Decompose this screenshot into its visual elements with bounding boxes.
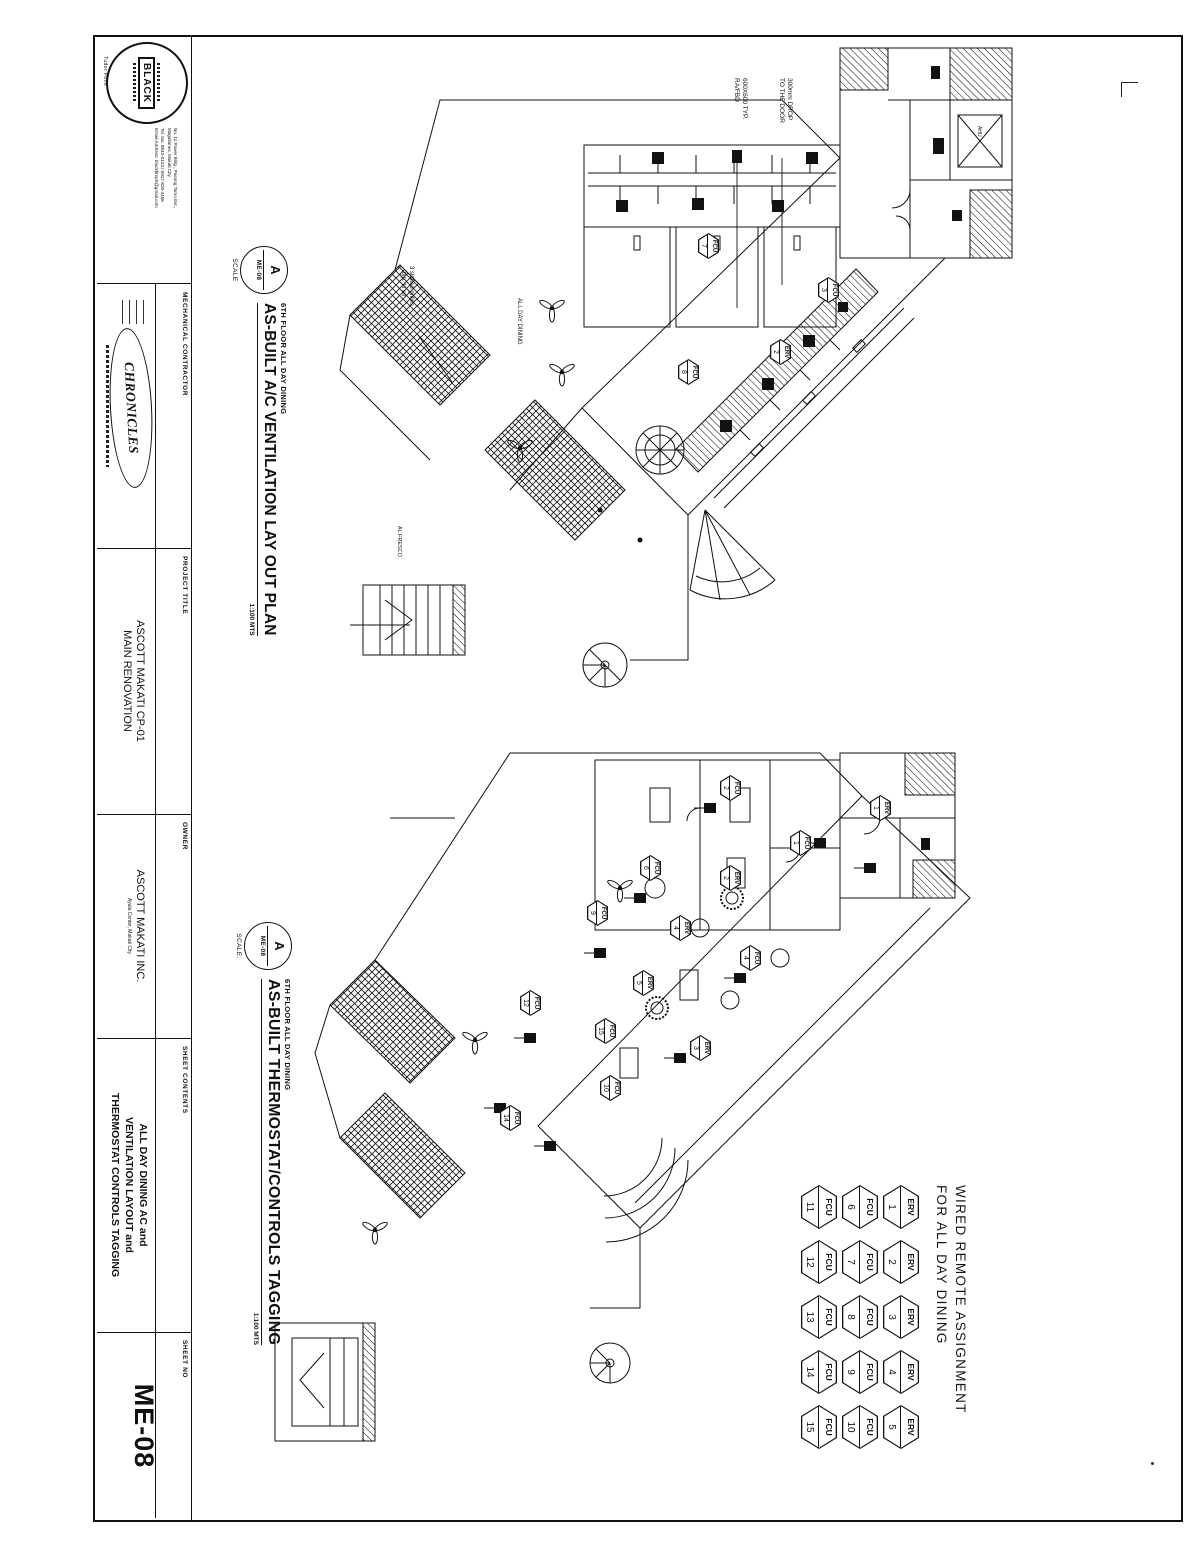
bubble-sheet-ref: ME-08 [255, 247, 262, 293]
erv-3-tag: ERV3 [883, 1295, 919, 1339]
fcu-9-tag: FCU9 [587, 900, 608, 926]
remote-heading-line1: WIRED REMOTE ASSIGNMENT [951, 1185, 970, 1449]
tag-hex-shape [859, 1186, 860, 1228]
bubble-sheet-ref: ME-08 [259, 923, 266, 969]
tag-type: FCU [709, 233, 719, 259]
contractor-section-label: MECHANICAL CONTRACTOR [181, 292, 188, 396]
tag-number: 12 [520, 990, 530, 1016]
plan2-title: AS-BUILT THERMOSTAT/CONTROLS TAGGING [261, 979, 282, 1345]
tag-number: 9 [587, 900, 597, 926]
plan2-scale-value: 1:100 MTS [252, 979, 259, 1345]
address-line: Email Address: blackfireph@gmail.com [152, 128, 158, 278]
project-title-label: PROJECT TITLE [181, 556, 188, 614]
fcu-4-tag: FCU4 [740, 945, 761, 971]
tag-number: 1 [870, 795, 880, 821]
tag-type: FCU [820, 1185, 837, 1229]
erv-2-tag: ERV2 [883, 1240, 919, 1284]
tag-type: FCU [606, 1018, 616, 1044]
tag-number: 6 [842, 1185, 859, 1229]
fcu-12-tag: FCU12 [801, 1240, 837, 1284]
tag-number: 13 [801, 1295, 818, 1339]
tag-number: 2 [883, 1240, 900, 1284]
scanned-drawing-page: 300mm DROP TO THE DOOR 600X600 TYP. RA/F… [0, 0, 1200, 1553]
tag-number: 5 [633, 970, 643, 996]
tag-type: ERV [731, 865, 741, 891]
tag-hex-shape [900, 1296, 901, 1338]
fcu-13-tag: FCU13 [801, 1295, 837, 1339]
tag-type: ERV [902, 1295, 919, 1339]
fcu-9-tag: FCU9 [842, 1350, 878, 1394]
fcu-12-tag: FCU12 [520, 990, 541, 1016]
plan1-title: AS-BUILT A/C VENTILATION LAY OUT PLAN [257, 303, 278, 636]
tag-number: 1 [883, 1185, 900, 1229]
tag-number: 8 [842, 1295, 859, 1339]
tag-number: 12 [801, 1240, 818, 1284]
tag-type: FCU [611, 1075, 621, 1101]
plan2-context: 6TH FLOOR ALL DAY DINING [283, 979, 292, 1345]
contractor-logo: BLACK [106, 42, 188, 124]
tag-type: FCU [829, 277, 839, 303]
tag-type: FCU [820, 1240, 837, 1284]
tag-type: FCU [731, 775, 741, 801]
wired-remote-assignment: WIRED REMOTE ASSIGNMENT FOR ALL DAY DINI… [796, 1185, 970, 1449]
tag-type: FCU [861, 1185, 878, 1229]
stamp-text: CHRONICLES [121, 362, 142, 455]
tag-number: 4 [740, 945, 750, 971]
drawing-sheet: 300mm DROP TO THE DOOR 600X600 TYP. RA/F… [0, 0, 1200, 1553]
erv-1-tag: ERV1 [883, 1185, 919, 1229]
tag-type: ERV [902, 1350, 919, 1394]
tag-hex-shape [900, 1186, 901, 1228]
stamp-subtext [106, 345, 109, 467]
fcu-1-tag: FCU1 [790, 830, 811, 856]
owner-name: ASCOTT MAKATI INC. [133, 814, 146, 1038]
fcu-6-tag: FCU6 [640, 855, 661, 881]
address-line: No. 11 Power Bldg., Pasong Tamo Ext., [172, 128, 178, 278]
erv-4-tag: ERV4 [883, 1350, 919, 1394]
fcu-10-tag: FCU10 [600, 1075, 621, 1101]
tag-type: FCU [861, 1240, 878, 1284]
tag-hex-shape [818, 1296, 819, 1338]
sheet-no-label: SHEET NO [181, 1340, 188, 1378]
stamp-notes [118, 300, 144, 324]
tag-hex-shape [859, 1296, 860, 1338]
tag-hex-shape [859, 1241, 860, 1283]
plan1-context: 6TH FLOOR ALL DAY DINING [279, 303, 288, 636]
tag-type: FCU [820, 1405, 837, 1449]
tag-number: 4 [883, 1350, 900, 1394]
tag-type: ERV [781, 339, 791, 365]
tag-type: ERV [902, 1185, 919, 1229]
remote-heading-line2: FOR ALL DAY DINING [932, 1185, 951, 1449]
remote-tag-grid: ERV1ERV2ERV3ERV4ERV5FCU6FCU7FCU8FCU9FCU1… [801, 1185, 919, 1449]
fcu-7-tag: FCU7 [842, 1240, 878, 1284]
tag-type: FCU [598, 900, 608, 926]
owner-value: ASCOTT MAKATI INC. Ayala Center, Makati … [125, 814, 146, 1038]
fcu-14-tag: FCU14 [500, 1105, 521, 1131]
fcu-15-tag: FCU15 [801, 1405, 837, 1449]
contents-line: THERMOSTAT CONTROLS TAGGING [108, 1038, 122, 1332]
tag-number: 14 [801, 1350, 818, 1394]
remote-row-fcu: FCU6FCU7FCU8FCU9FCU10 [842, 1185, 878, 1449]
tag-type: ERV [681, 915, 691, 941]
tag-type: FCU [651, 855, 661, 881]
tag-hex-shape [818, 1186, 819, 1228]
tag-number: 10 [600, 1075, 610, 1101]
tag-type: FCU [801, 830, 811, 856]
tag-type: ERV [701, 1035, 711, 1061]
fcu-15-tag: FCU15 [595, 1018, 616, 1044]
tag-hex-shape [900, 1351, 901, 1393]
tag-type: FCU [689, 359, 699, 385]
sheet-contents-label: SHEET CONTENTS [181, 1046, 188, 1114]
tag-number: 2 [720, 865, 730, 891]
fcu-8-tag: FCU8 [842, 1295, 878, 1339]
tag-number: 5 [883, 1405, 900, 1449]
tag-hex-shape [818, 1241, 819, 1283]
fcu-14-tag: FCU14 [801, 1350, 837, 1394]
tag-number: 3 [690, 1035, 700, 1061]
project-title-value: ASCOTT MAKATI CP-01 MAIN RENOVATION [120, 548, 146, 814]
tag-type: FCU [861, 1405, 878, 1449]
tag-type: FCU [861, 1295, 878, 1339]
bubble-letter: A [272, 923, 287, 969]
erv-3-tag: ERV3 [690, 1035, 711, 1061]
fcu-3-tag: FCU3 [818, 277, 839, 303]
contents-line: ALL DAY DINING AC and [136, 1038, 150, 1332]
erv-2-tag: ERV2 [770, 339, 791, 365]
remote-row-erv: ERV1ERV2ERV3ERV4ERV5 [883, 1185, 919, 1449]
tag-number: 3 [883, 1295, 900, 1339]
tag-type: FCU [531, 990, 541, 1016]
fcu-10-tag: FCU10 [842, 1405, 878, 1449]
scale-label: SCALE [231, 258, 238, 281]
tag-number: 2 [770, 339, 780, 365]
tag-number: 15 [801, 1405, 818, 1449]
tag-number: 8 [678, 359, 688, 385]
contents-line: VENTILATION LAYOUT and [122, 1038, 136, 1332]
logo-arc-text [134, 63, 137, 103]
fcu-2-tag: FCU2 [720, 775, 741, 801]
tag-hex-shape [818, 1406, 819, 1448]
equipment-tags-layer: FCU3ERV2FCU7FCU8ERV1FCU1FCU2ERV2FCU4ERV4… [0, 0, 1200, 1553]
bubble-letter: A [268, 247, 283, 293]
erv-5-tag: ERV5 [883, 1405, 919, 1449]
tag-number: 11 [801, 1185, 818, 1229]
tag-type: FCU [820, 1295, 837, 1339]
tag-number: 6 [640, 855, 650, 881]
tag-type: ERV [881, 795, 891, 821]
erv-2-tag: ERV2 [720, 865, 741, 891]
tag-type: ERV [902, 1240, 919, 1284]
address-line: Tel. No. 8844-0123 / 0917-820-4455 [159, 128, 165, 278]
tag-number: 14 [500, 1105, 510, 1131]
sheet-no-value: ME-08 [137, 1332, 150, 1520]
tag-hex-shape [859, 1351, 860, 1393]
tag-number: 9 [842, 1350, 859, 1394]
tag-type: FCU [820, 1350, 837, 1394]
tag-number: 15 [595, 1018, 605, 1044]
tag-type: FCU [511, 1105, 521, 1131]
project-line: ASCOTT MAKATI CP-01 [133, 548, 146, 814]
fcu-6-tag: FCU6 [842, 1185, 878, 1229]
tag-hex-shape [900, 1406, 901, 1448]
plan1-detail-bubble: A ME-08 SCALE [231, 246, 288, 294]
logo-tagline: Tudor Point [102, 56, 108, 86]
owner-address: Ayala Center, Makati City [125, 814, 133, 1038]
fcu-7-tag: FCU7 [698, 233, 719, 259]
tag-hex-shape [900, 1241, 901, 1283]
titleblock-top-rule [191, 35, 192, 1520]
titleblock-divider [97, 283, 192, 284]
plan1-scale-value: 1:100 MTS [248, 303, 255, 636]
tag-number: 2 [720, 775, 730, 801]
tag-hex-shape [859, 1406, 860, 1448]
plan1-caption: A ME-08 SCALE 6TH FLOOR ALL DAY DINING A… [231, 246, 288, 626]
address-line: Magallanes, Makati City [165, 128, 171, 278]
sheet-contents-value: ALL DAY DINING AC and VENTILATION LAYOUT… [108, 1038, 150, 1332]
fcu-11-tag: FCU11 [801, 1185, 837, 1229]
contractor-address: No. 11 Power Bldg., Pasong Tamo Ext., Ma… [152, 128, 178, 278]
fcu-8-tag: FCU8 [678, 359, 699, 385]
scale-label: SCALE: [235, 933, 242, 959]
erv-5-tag: ERV5 [633, 970, 654, 996]
logo-arc-text [158, 63, 161, 103]
tag-type: FCU [751, 945, 761, 971]
tag-number: 1 [790, 830, 800, 856]
project-line: MAIN RENOVATION [120, 548, 133, 814]
tag-number: 7 [842, 1240, 859, 1284]
plan2-detail-bubble: A ME-08 SCALE: [235, 922, 292, 970]
erv-1-tag: ERV1 [870, 795, 891, 821]
tag-type: FCU [861, 1350, 878, 1394]
plan2-caption: A ME-08 SCALE: 6TH FLOOR ALL DAY DINING … [235, 922, 292, 1332]
tag-number: 3 [818, 277, 828, 303]
logo-wordmark: BLACK [139, 57, 156, 109]
remote-row-fcu: FCU11FCU12FCU13FCU14FCU15 [801, 1185, 837, 1449]
erv-4-tag: ERV4 [670, 915, 691, 941]
tag-number: 7 [698, 233, 708, 259]
tag-type: ERV [644, 970, 654, 996]
tag-hex-shape [818, 1351, 819, 1393]
tag-type: ERV [902, 1405, 919, 1449]
tag-number: 10 [842, 1405, 859, 1449]
owner-label: OWNER [181, 822, 188, 850]
tag-number: 4 [670, 915, 680, 941]
